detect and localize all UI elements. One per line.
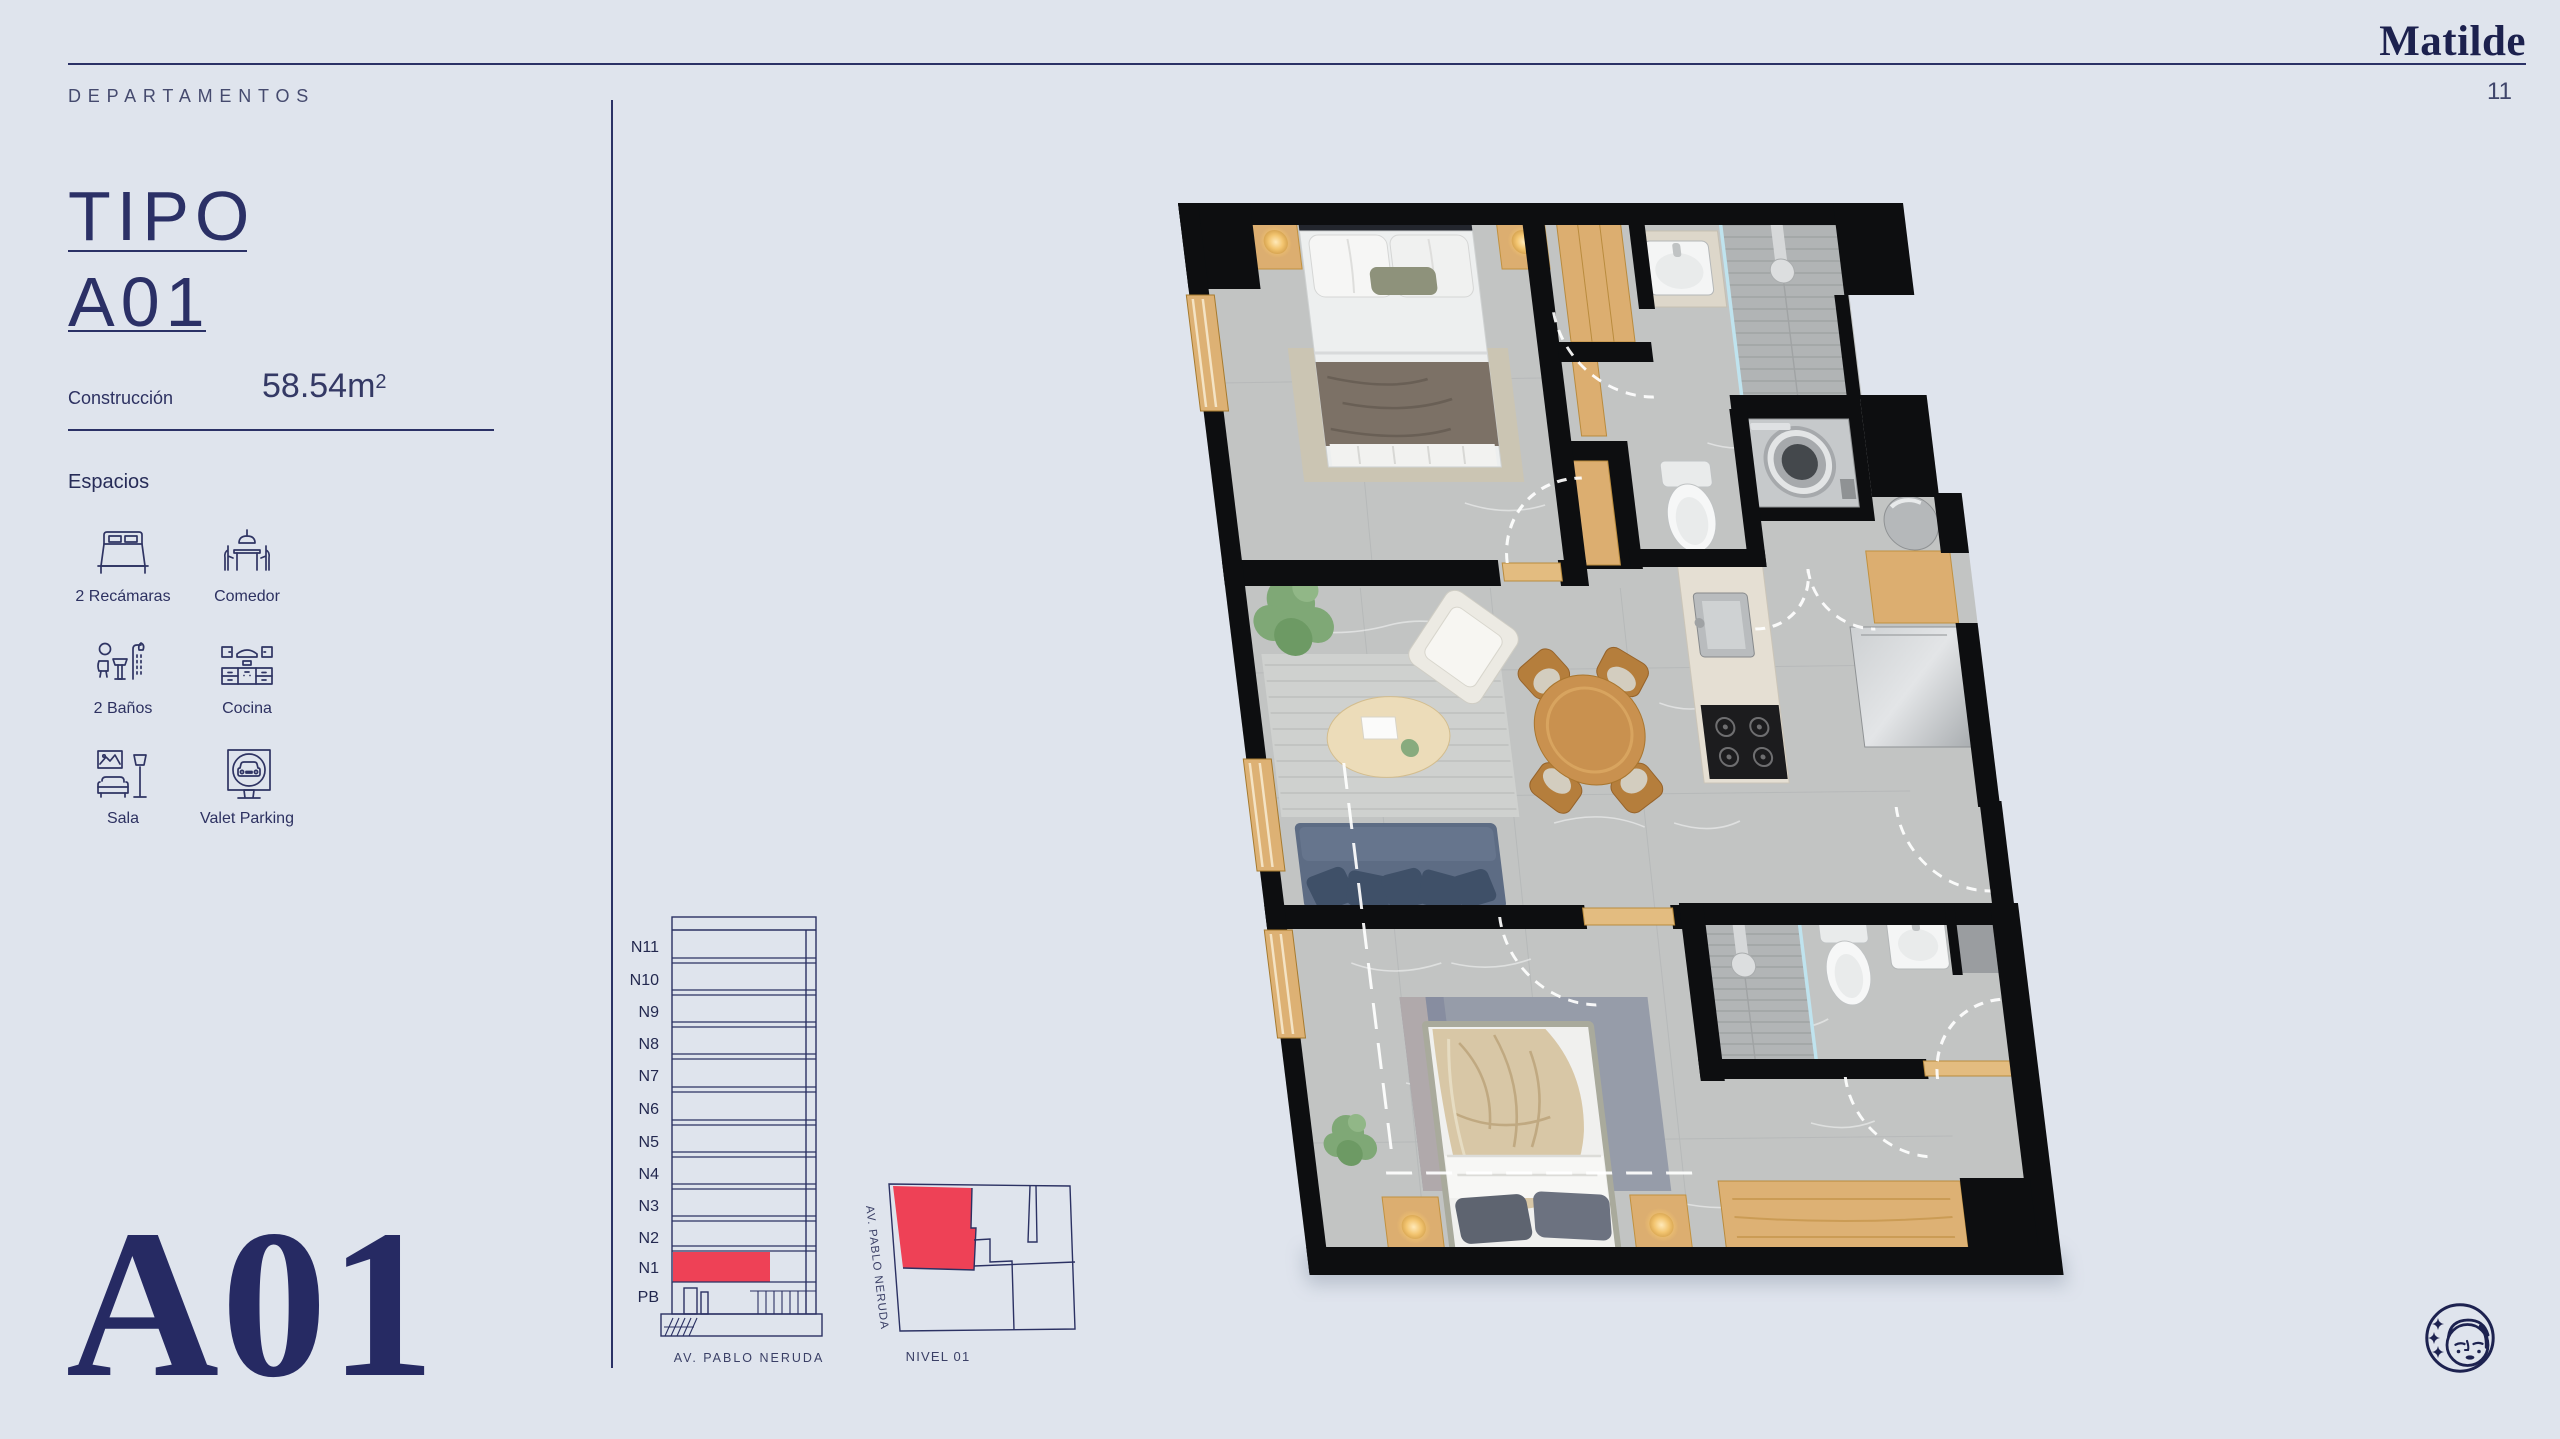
svg-text:N7: N7 xyxy=(639,1068,660,1085)
svg-text:N3: N3 xyxy=(639,1198,660,1215)
svg-text:N1: N1 xyxy=(639,1260,660,1277)
svg-text:AV. PABLO NERUDA: AV. PABLO NERUDA xyxy=(674,1351,825,1365)
svg-text:N9: N9 xyxy=(639,1004,660,1021)
svg-text:N5: N5 xyxy=(639,1134,660,1151)
svg-text:N10: N10 xyxy=(630,972,659,989)
svg-text:PB: PB xyxy=(638,1289,659,1306)
svg-text:N8: N8 xyxy=(639,1036,660,1053)
svg-text:N6: N6 xyxy=(639,1101,660,1118)
svg-text:N11: N11 xyxy=(631,939,659,956)
svg-text:N4: N4 xyxy=(639,1166,660,1183)
svg-text:N2: N2 xyxy=(639,1230,660,1247)
svg-text:AV. PABLO NERUDA: AV. PABLO NERUDA xyxy=(863,1205,890,1331)
svg-text:NIVEL 01: NIVEL 01 xyxy=(906,1349,971,1364)
